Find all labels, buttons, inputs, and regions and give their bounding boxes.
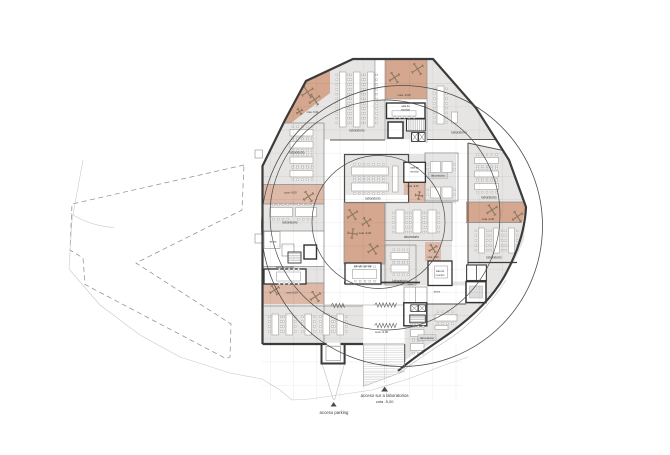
svg-text:laboratorio: laboratorio — [420, 336, 434, 340]
svg-text:acceso parking: acceso parking — [320, 410, 350, 415]
svg-text:laboratorio: laboratorio — [451, 131, 466, 135]
svg-text:cota -9,00: cota -9,00 — [359, 231, 372, 235]
svg-text:cota -9,00: cota -9,00 — [407, 185, 419, 188]
svg-text:aseos: aseos — [434, 291, 441, 294]
svg-text:reunión: reunión — [436, 273, 445, 277]
svg-text:cota -9,00: cota -9,00 — [397, 93, 411, 97]
svg-text:cota -0,00: cota -0,00 — [482, 217, 495, 221]
svg-text:sala de reunión: sala de reunión — [276, 265, 295, 269]
svg-text:aseo: aseo — [472, 280, 478, 282]
svg-text:laboratorio: laboratorio — [392, 279, 407, 283]
svg-text:cota -5,00: cota -5,00 — [376, 399, 395, 404]
svg-text:aseos: aseos — [408, 284, 415, 286]
svg-text:laboratorio: laboratorio — [486, 256, 501, 260]
svg-text:reunión: reunión — [401, 107, 410, 111]
svg-text:laboratorio: laboratorio — [404, 235, 419, 239]
svg-text:laboratorio: laboratorio — [289, 151, 304, 155]
svg-text:cota -9,00: cota -9,00 — [284, 191, 297, 195]
svg-text:reunión: reunión — [410, 170, 419, 174]
svg-text:acceso sur a laboratorios: acceso sur a laboratorios — [361, 393, 409, 398]
svg-text:laboratorio: laboratorio — [282, 220, 297, 224]
svg-text:laboratorio: laboratorio — [431, 174, 445, 178]
svg-text:laboratorio: laboratorio — [481, 196, 496, 200]
svg-text:laboratorio: laboratorio — [349, 129, 364, 133]
svg-text:sala de: sala de — [401, 104, 410, 108]
svg-text:cota -0,00: cota -0,00 — [427, 256, 439, 259]
svg-text:sala de: sala de — [436, 269, 445, 273]
